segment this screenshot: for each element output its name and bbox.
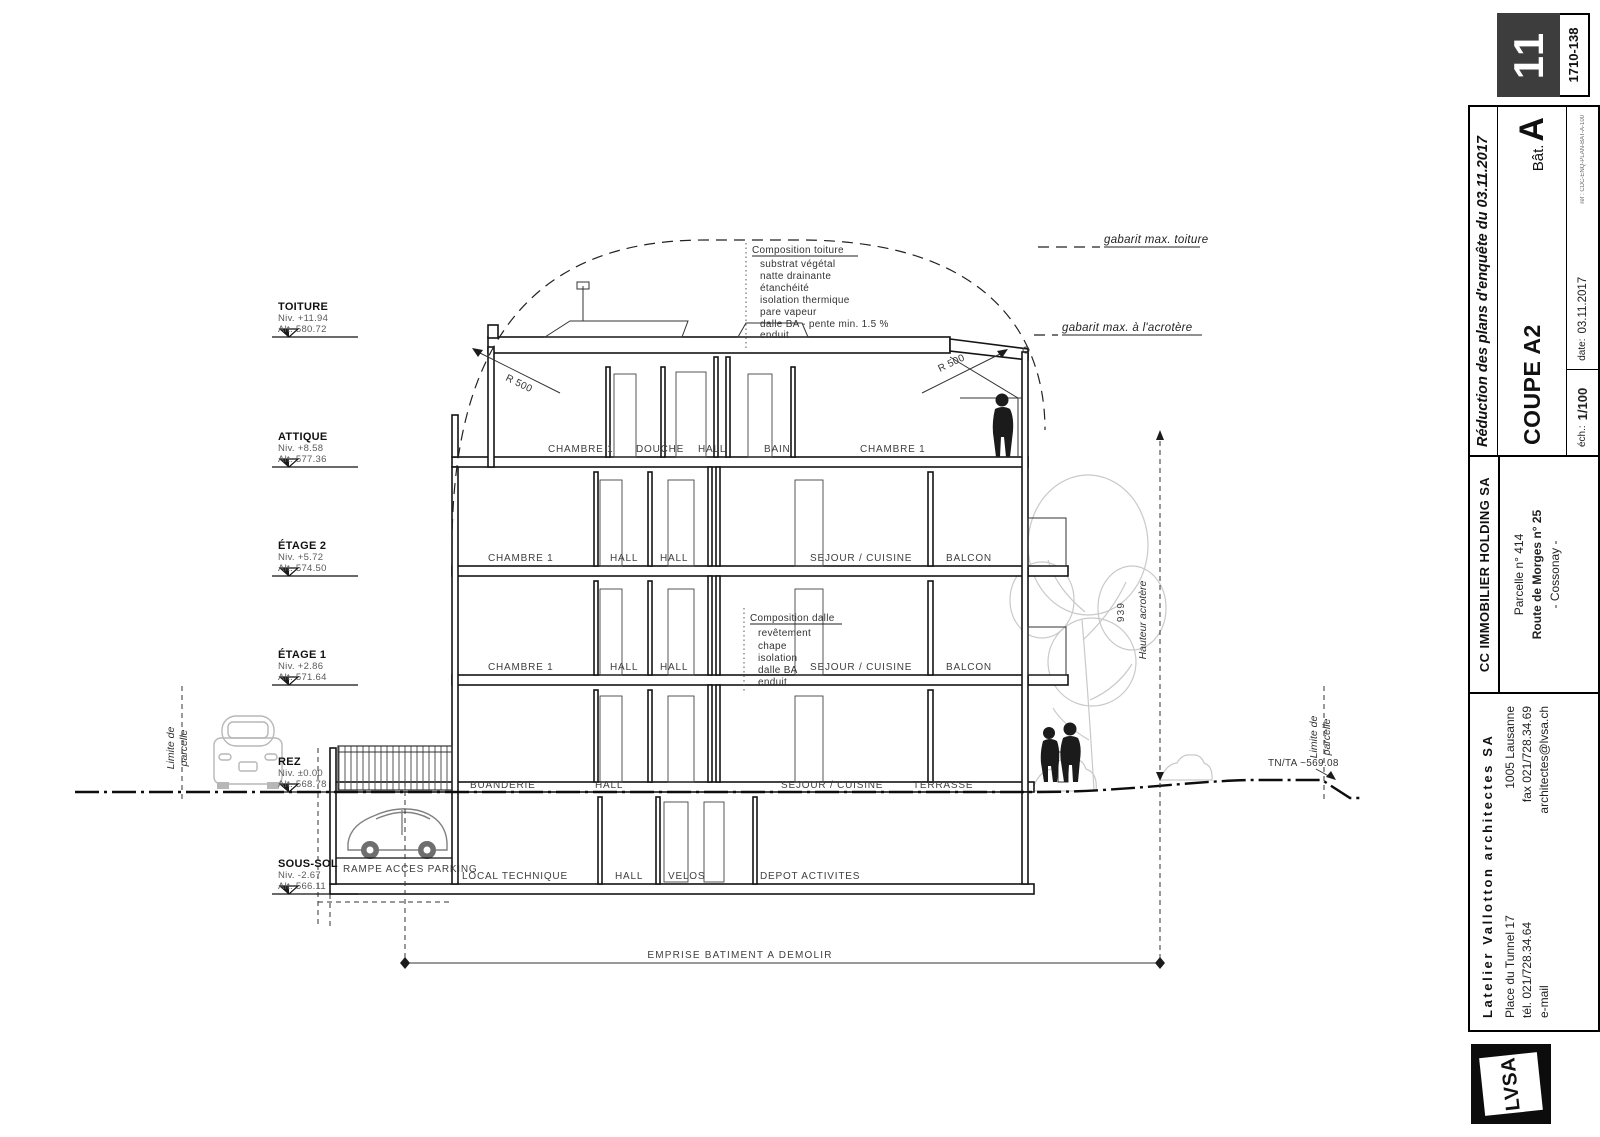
gabarit-acrotere-callout: gabarit max. à l'acrotère <box>1034 322 1202 335</box>
people-ground <box>1041 723 1081 783</box>
room-label: HALL <box>610 662 638 673</box>
level-marker-etage2: ÉTAGE 2 Niv. +5.72 Alt. 574.50 <box>272 539 358 576</box>
wall-attic-left <box>488 347 494 467</box>
level-niv: Niv. +2.86 <box>278 661 323 672</box>
level-niv: Niv. +8.58 <box>278 443 323 454</box>
floor1-slab <box>452 675 1028 685</box>
room-labels-etage2: CHAMBRE 1 HALL HALL SEJOUR / CUISINE BAL… <box>488 553 992 564</box>
dalle-item: chape <box>758 641 787 652</box>
level-niv: Niv. +11.94 <box>278 313 328 324</box>
car-garage <box>348 809 447 859</box>
r500-left: R 500 <box>472 348 560 395</box>
drawing-sheet: gabarit max. toiture gabarit max. à l'ac… <box>0 0 1600 1132</box>
scale-value: 1/100 <box>1575 388 1590 421</box>
toiture-item: étanchéité <box>760 283 809 294</box>
limite-text: Limite de <box>165 727 177 770</box>
building-structure <box>330 282 1068 894</box>
page-number: 11 <box>1505 31 1553 79</box>
limite-text: Limite de <box>1308 716 1320 759</box>
scale-label: éch.: <box>1577 425 1588 447</box>
room-label: BAIN <box>764 444 791 455</box>
architect-address1: Place du Tunnel 17 <box>1503 814 1518 1018</box>
gabarit-toiture-callout: gabarit max. toiture <box>1038 234 1208 247</box>
wall-basement-right <box>1022 792 1028 884</box>
level-alt: Alt. 571.64 <box>278 672 327 683</box>
access-ramp <box>338 746 452 790</box>
room-label: HALL <box>660 662 688 673</box>
dalle-item: enduit <box>758 677 787 688</box>
balcony2-box <box>1028 518 1066 566</box>
ramp-label: RAMPE ACCES PARKING <box>343 864 478 875</box>
room-label: BALCON <box>946 553 992 564</box>
tnta-callout: TN/TA ~569.08 <box>1268 758 1339 780</box>
level-name: TOITURE <box>278 301 328 313</box>
client-block: CC IMMOBILIER HOLDING SA Parcelle n° 414… <box>1468 457 1600 694</box>
composition-toiture-title: Composition toiture <box>752 245 844 256</box>
gabarit-acrotere-label: gabarit max. à l'acrotère <box>1062 322 1193 334</box>
level-marker-toiture: TOITURE Niv. +11.94 Alt. 580.72 <box>272 301 358 337</box>
limite-text: parcelle <box>178 729 190 767</box>
room-label: CHAMBRE 1 <box>488 553 554 564</box>
roof-slab <box>488 337 950 353</box>
attic-floor-slab <box>452 457 1028 467</box>
architect-email: architectes@lvsa.ch <box>1537 706 1552 814</box>
toiture-item: isolation thermique <box>760 295 850 306</box>
level-alt: Alt. 580.72 <box>278 324 327 335</box>
architect-block: Latelier Vallotton architectes SA Place … <box>1468 694 1600 1032</box>
building-letter: A <box>1513 117 1552 142</box>
level-marker-etage1: ÉTAGE 1 Niv. +2.86 Alt. 571.64 <box>272 648 358 685</box>
room-label: CHAMBRE 1 <box>548 444 614 455</box>
parapet-left <box>488 325 498 338</box>
room-label: BUANDERIE <box>470 780 536 791</box>
r500-left-label: R 500 <box>504 373 534 395</box>
level-niv: Niv. +5.72 <box>278 552 323 563</box>
drawing-info-block: Réduction des plans d'enquête du 03.11.2… <box>1468 105 1600 457</box>
building-id: Bât. A <box>1513 117 1552 171</box>
level-name: ATTIQUE <box>278 431 328 443</box>
level-alt: Alt. 566.11 <box>278 881 326 892</box>
composition-toiture: Composition toiture substrat végétal nat… <box>746 243 889 350</box>
page-block: 11 1710-138 <box>1468 0 1600 105</box>
architect-contact: Place du Tunnel 17 1005 Lausanne tél. 02… <box>1503 706 1552 1018</box>
room-label: BALCON <box>946 662 992 673</box>
basement-slab <box>330 884 1034 894</box>
client-address: Parcelle n° 414 Route de Morges n° 25 - … <box>1500 457 1564 692</box>
room-label: VELOS <box>668 871 705 882</box>
architect-address2: 1005 Lausanne <box>1503 706 1518 814</box>
client-street: Route de Morges n° 25 <box>1528 457 1546 692</box>
balcony1-box <box>1028 627 1066 675</box>
hauteur-label: Hauteur acrotère <box>1137 580 1149 659</box>
tnta-label: TN/TA ~569.08 <box>1268 758 1339 769</box>
r500-right-label: R 500 <box>936 352 966 374</box>
toiture-item: enduit <box>760 330 789 341</box>
revision-note: Réduction des plans d'enquête du 03.11.2… <box>1470 107 1498 455</box>
level-name: ÉTAGE 1 <box>278 648 326 661</box>
architect-fax: fax 021/728.34.69 <box>1520 706 1535 814</box>
gabarit-outline <box>452 240 1045 548</box>
wall-attic-stub <box>452 415 458 457</box>
person-attic-terrace <box>993 394 1013 458</box>
dalle-item: isolation <box>758 653 797 664</box>
tree-group <box>1010 475 1212 791</box>
dalle-item: dalle BA <box>758 665 798 676</box>
client-city: - Cossonay - <box>1546 457 1564 692</box>
room-label: CHAMBRE 1 <box>860 444 926 455</box>
architect-name: Latelier Vallotton architectes SA <box>1480 706 1495 1018</box>
balcony1-slab <box>1028 675 1068 685</box>
balcony2-slab <box>1028 566 1068 576</box>
toiture-item: pare vapeur <box>760 307 817 318</box>
level-name: REZ <box>278 756 301 768</box>
lvsa-logo-inner: LVSA <box>1479 1052 1543 1116</box>
room-labels-etage1: CHAMBRE 1 HALL HALL SEJOUR / CUISINE BAL… <box>488 662 992 673</box>
room-label: DEPOT ACTIVITES <box>760 871 860 882</box>
parcel-limit-left-label: Limite de parcelle <box>165 727 190 770</box>
room-label: SEJOUR / CUISINE <box>810 662 912 673</box>
room-label: SEJOUR / CUISINE <box>810 553 912 564</box>
level-name: SOUS-SOL <box>278 858 338 870</box>
project-number: 1710-138 <box>1560 13 1590 97</box>
hauteur-value: 939 <box>1116 602 1127 622</box>
page-number-box: 11 <box>1497 13 1560 97</box>
room-label: CHAMBRE 1 <box>488 662 554 673</box>
building-label: Bât. <box>1530 145 1547 172</box>
room-label: HALL <box>595 780 623 791</box>
architect-tel: tél. 021/728.34.64 <box>1520 814 1535 1018</box>
toiture-item: substrat végétal <box>760 259 835 270</box>
toiture-item: dalle BA - pente min. 1.5 % <box>760 319 889 330</box>
lvsa-logo-text: LVSA <box>1497 1056 1526 1112</box>
room-label: HALL <box>660 553 688 564</box>
wall-left <box>452 467 458 792</box>
wall-right <box>1022 352 1028 792</box>
emprise-dimension: EMPRISE BATIMENT A DEMOLIR <box>400 950 1165 969</box>
date-value: 03.11.2017 <box>1577 277 1589 334</box>
floor2-slab <box>452 566 1028 576</box>
skylight-1 <box>545 321 688 337</box>
level-alt: Alt. 568.78 <box>278 779 327 790</box>
level-alt: Alt. 577.36 <box>278 454 327 465</box>
client-name: CC IMMOBILIER HOLDING SA <box>1470 457 1500 692</box>
limite-text: parcelle <box>1321 718 1333 756</box>
toiture-item: natte drainante <box>760 271 831 282</box>
divider <box>1567 369 1598 370</box>
level-niv: Niv. ±0.00 <box>278 768 323 779</box>
car-rear-view <box>214 716 282 789</box>
room-label: HALL <box>698 444 726 455</box>
level-niv: Niv. -2.67 <box>278 870 321 881</box>
date-label: date: <box>1577 339 1588 361</box>
scale-date-row: éch.: 1/100 date: 03.11.2017 ref : CDC-E… <box>1566 107 1598 455</box>
parcel-limit-right-label: Limite de parcelle <box>1308 716 1333 759</box>
composition-dalle-title: Composition dalle <box>750 613 835 624</box>
title-block: LVSA Latelier Vallotton architectes SA P… <box>1468 0 1600 1132</box>
lvsa-logo: LVSA <box>1471 1044 1551 1124</box>
dalle-item: revêtement <box>758 628 811 639</box>
architect-email-label: e-mail <box>1537 814 1552 1018</box>
room-label: LOCAL TECHNIQUE <box>462 871 568 882</box>
room-labels-attique: CHAMBRE 1 DOUCHE HALL BAIN CHAMBRE 1 <box>548 444 926 455</box>
room-label: TERRASSE <box>913 780 973 791</box>
level-alt: Alt. 574.50 <box>278 563 327 574</box>
room-label: HALL <box>610 553 638 564</box>
reference-code: ref : CDC-ENQ-PLAN-BAT-A-100 <box>1580 115 1586 204</box>
client-parcel: Parcelle n° 414 <box>1510 457 1528 692</box>
architect-logo: LVSA <box>1468 1032 1600 1132</box>
room-label: HALL <box>615 871 643 882</box>
section-drawing: gabarit max. toiture gabarit max. à l'ac… <box>0 0 1468 1132</box>
gabarit-toiture-label: gabarit max. toiture <box>1104 234 1208 246</box>
room-label: SEJOUR / CUISINE <box>781 780 883 791</box>
level-marker-attique: ATTIQUE Niv. +8.58 Alt. 577.36 <box>272 431 358 467</box>
drawing-title: COUPE A2 <box>1519 324 1546 445</box>
room-label: DOUCHE <box>636 444 684 455</box>
level-name: ÉTAGE 2 <box>278 539 326 552</box>
emprise-label: EMPRISE BATIMENT A DEMOLIR <box>647 950 832 961</box>
